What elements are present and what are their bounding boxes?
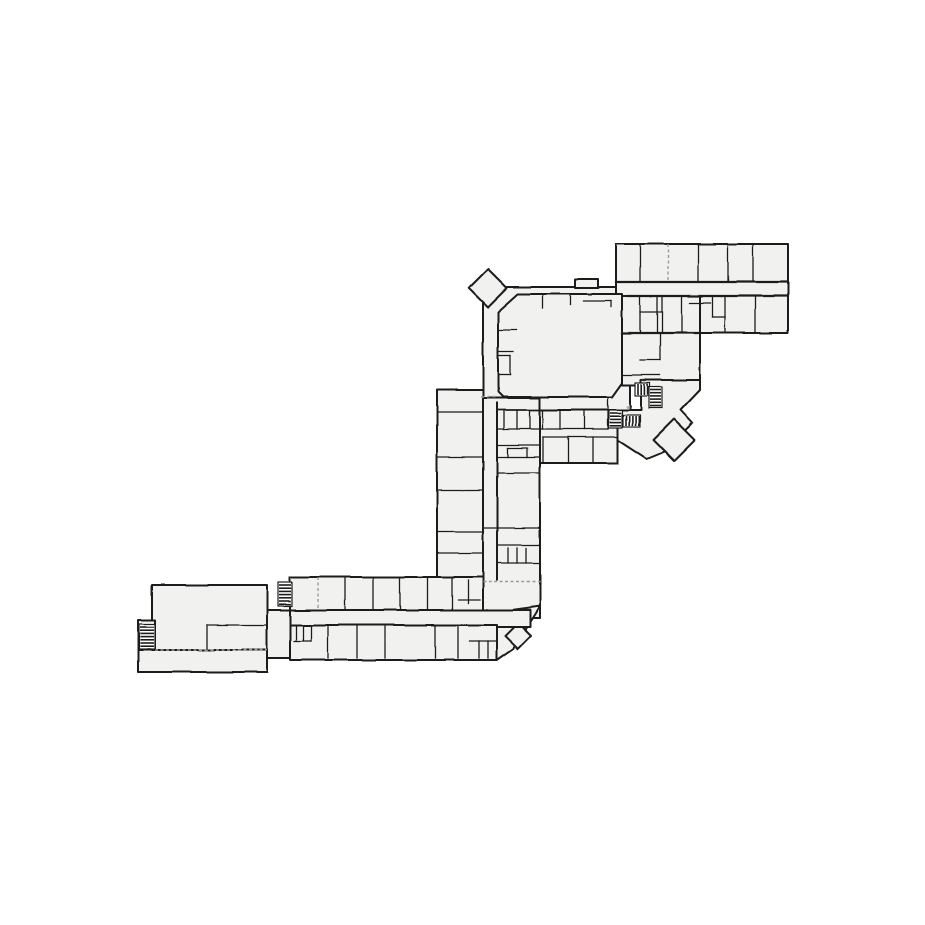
west-large-room (152, 585, 267, 650)
hall-top-bump (575, 279, 598, 288)
stair-southwest (278, 582, 292, 606)
floor-plan-svg: upup (0, 0, 925, 925)
floor-plan-drawing: upup (138, 244, 788, 672)
stair-up-label-upper: up (641, 378, 647, 383)
floor-plan-page: upup (0, 0, 925, 925)
west-passage (267, 610, 290, 658)
stair-up-label-lower: up (626, 405, 632, 410)
room-blocks-layer (138, 244, 788, 672)
stair-lobby-upper-a (635, 383, 650, 396)
southwest-upper-row (290, 577, 483, 612)
southwest-lower-row (290, 625, 497, 660)
stair-lobby-lower-b (623, 415, 640, 427)
mid-corridor-block (483, 398, 540, 618)
west-lower-strip (138, 650, 267, 672)
mid-left-room-column (437, 390, 483, 577)
stair-lobby-lower-a (609, 410, 622, 428)
hall-room (498, 294, 622, 397)
stair-west (139, 624, 155, 649)
stair-lobby-upper-b (649, 387, 662, 408)
right-mid-block (622, 296, 700, 385)
